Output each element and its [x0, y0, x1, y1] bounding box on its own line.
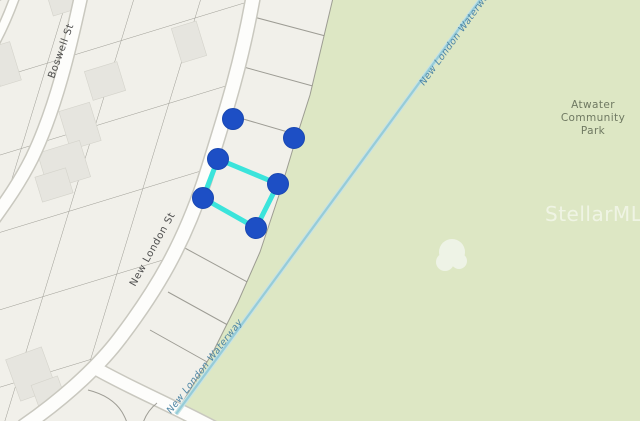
- parcel-vertex-marker[interactable]: [208, 149, 229, 170]
- parcel-vertex-marker[interactable]: [223, 109, 244, 130]
- park-label-line1: Atwater: [571, 99, 615, 111]
- parcel-vertex-marker[interactable]: [246, 218, 267, 239]
- parcel-vertex-marker[interactable]: [193, 188, 214, 209]
- map-svg[interactable]: Boswell St New London St New London Wate…: [0, 0, 640, 421]
- map-canvas[interactable]: Boswell St New London St New London Wate…: [0, 0, 640, 421]
- park-label-line2: Community: [561, 112, 625, 124]
- stellar-mls-watermark: StellarMLS: [545, 202, 640, 226]
- park-label-line3: Park: [581, 125, 606, 137]
- parcel-vertex-marker[interactable]: [268, 174, 289, 195]
- parcel-vertex-marker[interactable]: [284, 128, 305, 149]
